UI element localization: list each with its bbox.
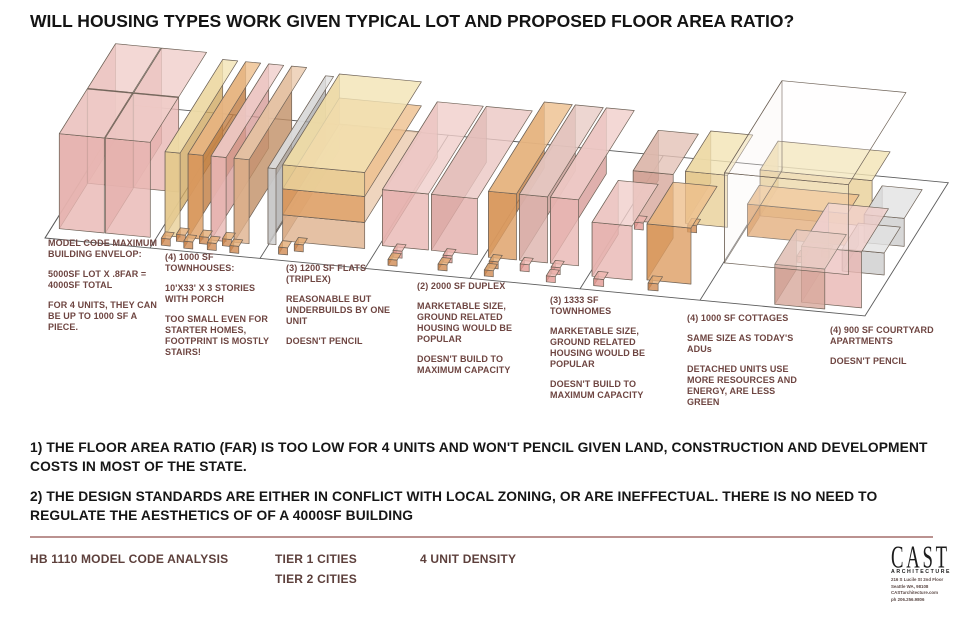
box-front bbox=[279, 247, 288, 255]
box-front bbox=[647, 224, 691, 284]
conclusion-2: 2) THE DESIGN STANDARDS ARE EITHER IN CO… bbox=[30, 487, 940, 525]
box-top bbox=[388, 253, 401, 260]
lot-annotation-townhouses-1000sf: (4) 1000 SF TOWNHOUSES:10'X33' X 3 STORI… bbox=[165, 252, 277, 367]
box-top bbox=[207, 236, 220, 243]
annotation-paragraph: 5000SF LOT X .8FAR = 4000SF TOTAL bbox=[48, 269, 160, 291]
footer-analysis-label: HB 1110 MODEL CODE ANALYSIS bbox=[30, 552, 228, 566]
annotation-paragraph: (4) 1000 SF TOWNHOUSES: bbox=[165, 252, 277, 274]
box-front bbox=[268, 168, 276, 245]
footer-density-label: 4 UNIT DENSITY bbox=[420, 552, 516, 566]
box-front bbox=[211, 156, 226, 242]
box-front bbox=[648, 283, 658, 291]
lot-annotation-cottages-1000sf: (4) 1000 SF COTTAGESSAME SIZE AS TODAY'S… bbox=[687, 313, 803, 417]
box-top bbox=[438, 258, 451, 265]
annotation-paragraph: DETACHED UNITS USE MORE RESOURCES AND EN… bbox=[687, 364, 803, 408]
box-top bbox=[230, 239, 243, 246]
box-front bbox=[161, 238, 170, 246]
annotation-paragraph: SAME SIZE AS TODAY'S ADUs bbox=[687, 333, 803, 355]
annotation-paragraph: MARKETABLE SIZE, GROUND RELATED HOUSING … bbox=[417, 301, 529, 345]
annotation-paragraph: MARKETABLE SIZE, GROUND RELATED HOUSING … bbox=[550, 326, 662, 370]
annotation-paragraph: (4) 1000 SF COTTAGES bbox=[687, 313, 803, 324]
annotation-paragraph: (2) 2000 SF DUPLEX bbox=[417, 281, 529, 292]
annotation-paragraph: (3) 1200 SF FLATS (TRIPLEX) bbox=[286, 263, 392, 285]
lot-annotation-max-envelope: MODEL CODE MAXIMUM BUILDING ENVELOP:5000… bbox=[48, 238, 160, 342]
building-box-flats-1200sf bbox=[279, 241, 292, 255]
building-box-duplex-2000sf bbox=[438, 258, 451, 271]
box-front bbox=[188, 154, 203, 239]
logo-contact-line: 216 S Lucile St 2nd Floor bbox=[891, 577, 957, 584]
annotation-paragraph: (4) 900 SF COURTYARD APARTMENTS bbox=[830, 325, 938, 347]
box-top bbox=[484, 263, 497, 270]
logo-contact-line: Seattle WA, 98108 bbox=[891, 584, 957, 591]
building-box-townhomes-1333sf bbox=[484, 263, 497, 276]
building-box-townhouses-1000sf bbox=[184, 235, 197, 249]
annotation-paragraph: MODEL CODE MAXIMUM BUILDING ENVELOP: bbox=[48, 238, 160, 260]
annotation-paragraph: DOESN'T PENCIL bbox=[830, 356, 938, 367]
annotation-paragraph: (3) 1333 SF TOWNHOMES bbox=[550, 295, 662, 317]
box-front bbox=[184, 241, 193, 249]
box-front bbox=[724, 173, 848, 275]
logo-contact-line: ph 206.256.9806 bbox=[891, 597, 957, 604]
footer-tier1-label: TIER 1 CITIES bbox=[275, 552, 357, 566]
annotation-paragraph: DOESN'T BUILD TO MAXIMUM CAPACITY bbox=[417, 354, 529, 376]
box-front bbox=[234, 158, 249, 244]
annotation-paragraph: 10'X33' X 3 STORIES WITH PORCH bbox=[165, 283, 277, 305]
logo-contact-line: CASTarchitecture.com bbox=[891, 590, 957, 597]
box-front bbox=[551, 197, 579, 266]
box-front bbox=[594, 279, 604, 287]
page: WILL HOUSING TYPES WORK GIVEN TYPICAL LO… bbox=[0, 0, 963, 623]
building-box-townhomes-1333sf bbox=[546, 269, 559, 282]
box-front bbox=[382, 190, 428, 250]
box-front bbox=[431, 194, 477, 254]
cast-architecture-logo: CAST ARCHITECTURE 216 S Lucile St 2nd Fl… bbox=[891, 541, 957, 603]
box-front bbox=[165, 152, 180, 237]
annotation-paragraph: DOESN'T PENCIL bbox=[286, 336, 392, 347]
conclusion-1: 1) THE FLOOR AREA RATIO (FAR) IS TOO LOW… bbox=[30, 438, 940, 476]
logo-name: CAST bbox=[891, 541, 950, 577]
footer-tier2-label: TIER 2 CITIES bbox=[275, 572, 357, 586]
building-box-townhouses-1000sf bbox=[161, 232, 174, 246]
box-top bbox=[546, 269, 559, 276]
box-top bbox=[161, 232, 174, 239]
box-top bbox=[279, 241, 292, 248]
box-top bbox=[184, 235, 197, 242]
box-front bbox=[520, 264, 529, 272]
annotation-paragraph: FOR 4 UNITS, THEY CAN BE UP TO 1000 SF A… bbox=[48, 300, 160, 333]
lot-annotation-flats-1200sf: (3) 1200 SF FLATS (TRIPLEX)REASONABLE BU… bbox=[286, 263, 392, 356]
building-box-townhouses-1000sf bbox=[207, 236, 220, 250]
lot-annotation-townhomes-1333sf: (3) 1333 SF TOWNHOMESMARKETABLE SIZE, GR… bbox=[550, 295, 662, 410]
box-front bbox=[520, 194, 548, 263]
annotation-paragraph: TOO SMALL EVEN FOR STARTER HOMES, FOOTPR… bbox=[165, 314, 277, 358]
box-front bbox=[634, 222, 643, 230]
annotation-paragraph: DOESN'T BUILD TO MAXIMUM CAPACITY bbox=[550, 379, 662, 401]
box-front bbox=[59, 134, 104, 233]
box-front bbox=[489, 191, 517, 260]
box-front bbox=[294, 244, 303, 252]
footer-divider bbox=[30, 536, 933, 538]
annotation-paragraph: REASONABLE BUT UNDERBUILDS BY ONE UNIT bbox=[286, 294, 392, 327]
box-front bbox=[207, 243, 216, 251]
box-front bbox=[105, 138, 150, 237]
lot-annotation-courtyard-900sf: (4) 900 SF COURTYARD APARTMENTSDOESN'T P… bbox=[830, 325, 938, 376]
lot-annotation-duplex-2000sf: (2) 2000 SF DUPLEXMARKETABLE SIZE, GROUN… bbox=[417, 281, 529, 385]
logo-contact-lines: 216 S Lucile St 2nd FloorSeattle WA, 981… bbox=[891, 577, 957, 603]
